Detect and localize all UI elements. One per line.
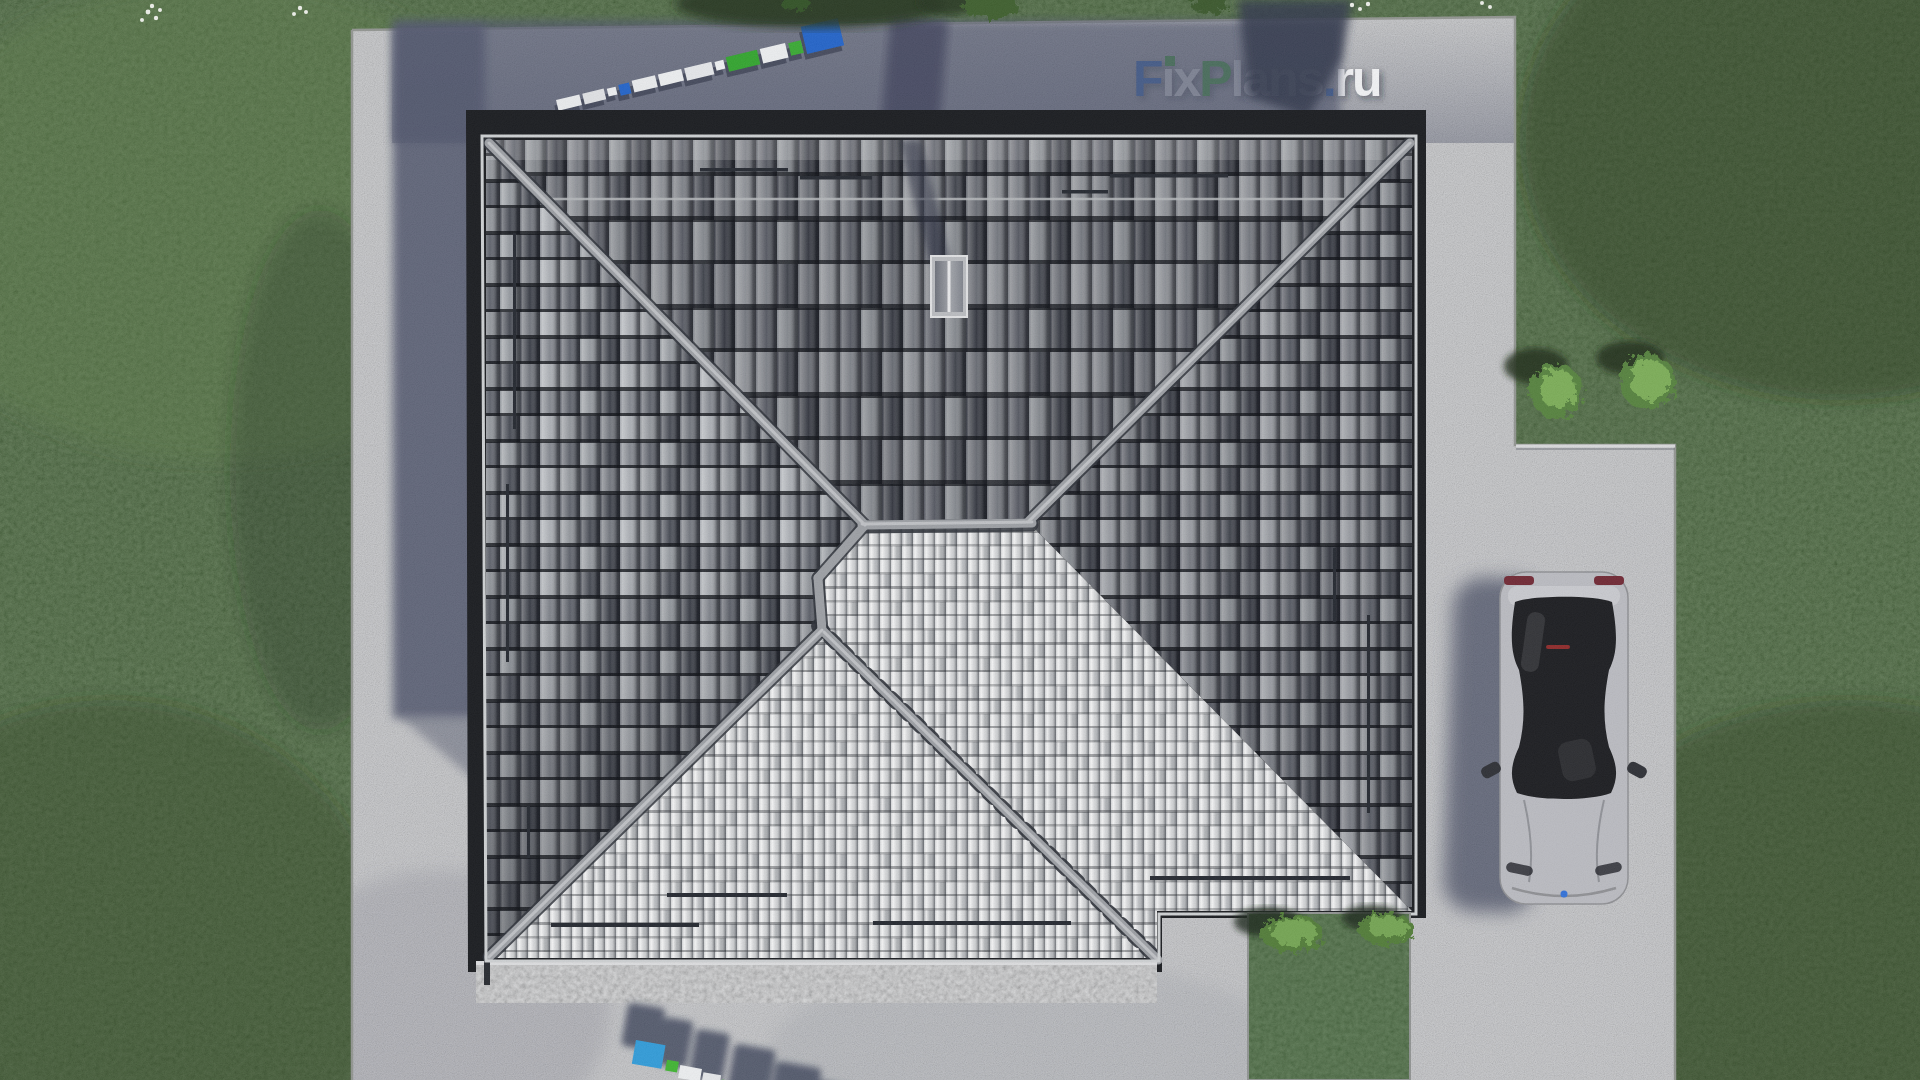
global-grain	[0, 0, 1920, 1080]
aerial-house-render: FixPlans.ru FixPlans.ru	[0, 0, 1920, 1080]
render-viewport: FixPlans.ru FixPlans.ru	[0, 0, 1920, 1080]
